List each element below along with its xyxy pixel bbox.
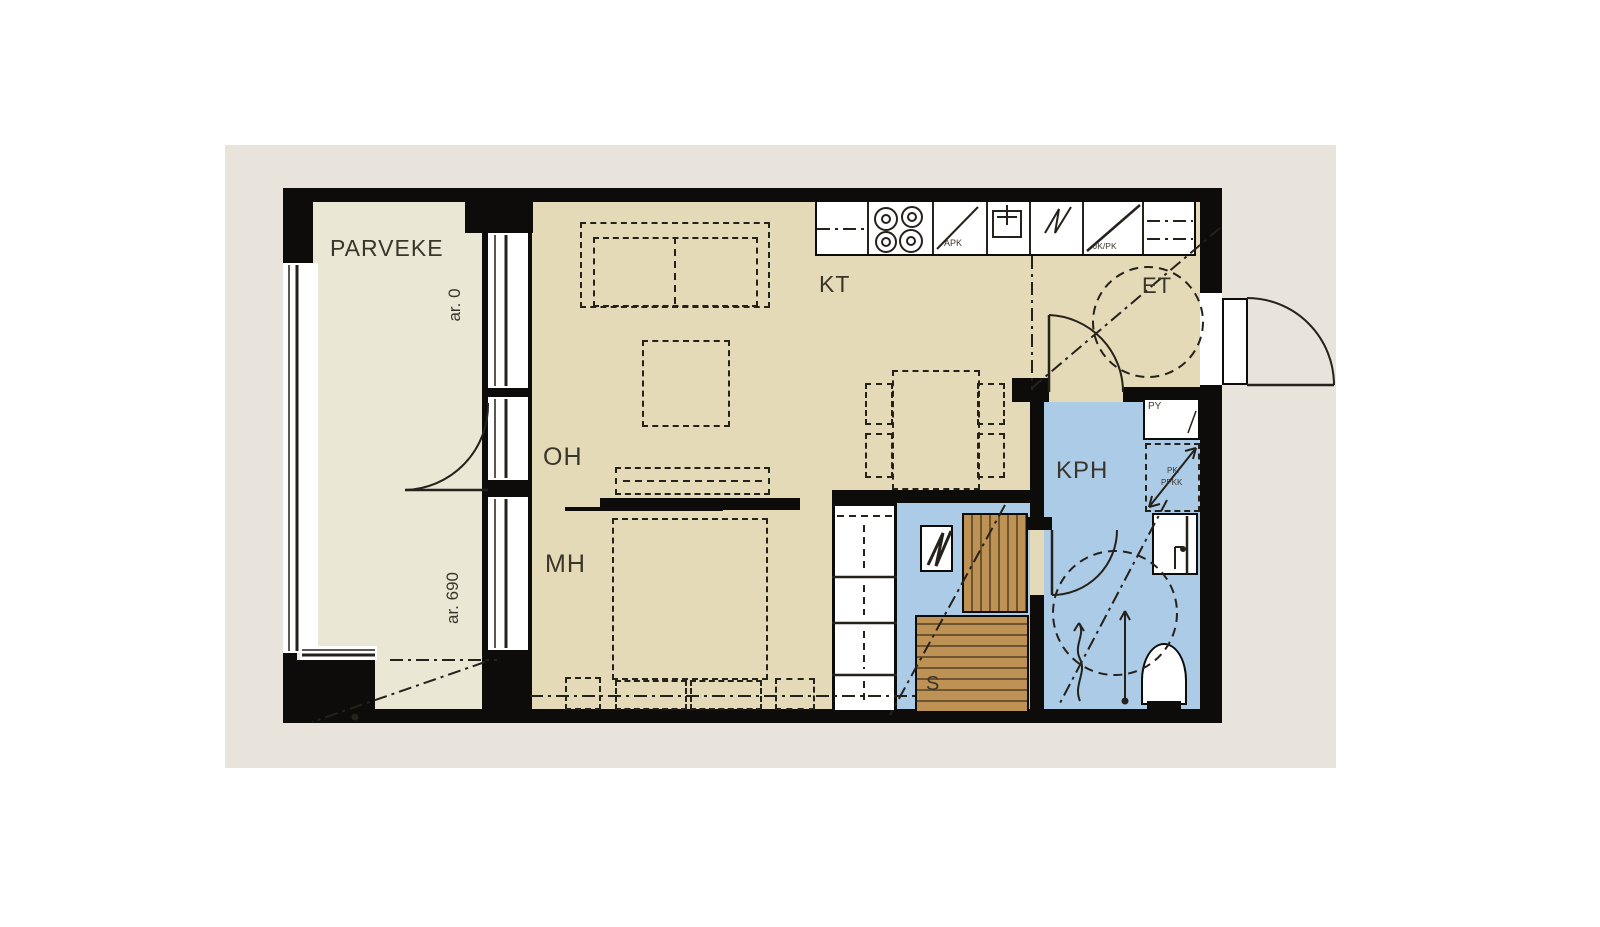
wardrobe-column: [832, 503, 897, 713]
label-ar-top: ar. 0: [445, 275, 465, 335]
balcony-railing-left: [283, 263, 318, 653]
label-bathroom: KPH: [1056, 457, 1108, 485]
label-entry: ET: [1142, 273, 1172, 299]
entrance-door-swing: [1247, 298, 1334, 385]
balcony-railing-bottom: [300, 646, 377, 660]
sauna-heater: [920, 525, 953, 572]
sofa-seat: [593, 237, 758, 307]
label-kitchen: KT: [819, 271, 850, 298]
label-balcony: PARVEKE: [330, 235, 444, 262]
wall-balcony-corner-top: [283, 188, 313, 263]
wall-bottom: [283, 709, 1222, 723]
coffee-table: [642, 340, 730, 427]
window-bedroom: [488, 497, 528, 650]
floor-plan-canvas: PARVEKE ar. 0 ar. 690 OH MH KT ET KPH S …: [225, 145, 1336, 768]
bed: [612, 518, 768, 680]
label-washer-line1: PK/: [1167, 466, 1180, 475]
wall-balcony-corner-bottom: [283, 660, 375, 723]
wall-bathroom-west-lower: [1030, 595, 1044, 709]
label-fridge-freezer: JK/PK: [1093, 241, 1117, 251]
sauna-bench-lower: [915, 615, 1029, 713]
nightstand-3: [690, 680, 762, 710]
headboard-ledge: [565, 507, 723, 511]
label-ar-bottom: ar. 690: [443, 563, 463, 633]
nightstand-2: [615, 680, 687, 710]
washbasin: [1152, 513, 1198, 575]
window-living: [488, 233, 528, 388]
wall-sauna-north: [832, 490, 1030, 503]
sauna-bench-upper: [962, 513, 1028, 613]
label-washer-line2: PPKK: [1161, 478, 1182, 487]
entrance-door-panel: [1222, 298, 1248, 385]
wall-bathroom-west-upper: [1030, 390, 1044, 517]
nightstand-1: [565, 677, 601, 710]
entrance-opening: [1200, 293, 1222, 385]
wall-right: [1200, 188, 1222, 723]
label-sauna: S: [926, 673, 940, 696]
tv-bench: [615, 467, 770, 495]
label-dishwasher: APK: [944, 238, 962, 248]
dining-table: [892, 370, 980, 490]
toilet-base: [1147, 701, 1181, 709]
label-living-room: OH: [543, 443, 583, 472]
dining-chair-2: [865, 433, 893, 478]
nightstand-4: [775, 678, 815, 710]
dining-chair-1: [865, 383, 893, 425]
kitchen-cabinet-row: [815, 200, 1196, 256]
label-laundry-cabinet: PY: [1148, 401, 1161, 412]
balcony-door-opening: [488, 397, 528, 480]
dining-chair-4: [977, 433, 1005, 478]
label-bedroom: MH: [545, 550, 586, 579]
dining-chair-3: [977, 383, 1005, 425]
